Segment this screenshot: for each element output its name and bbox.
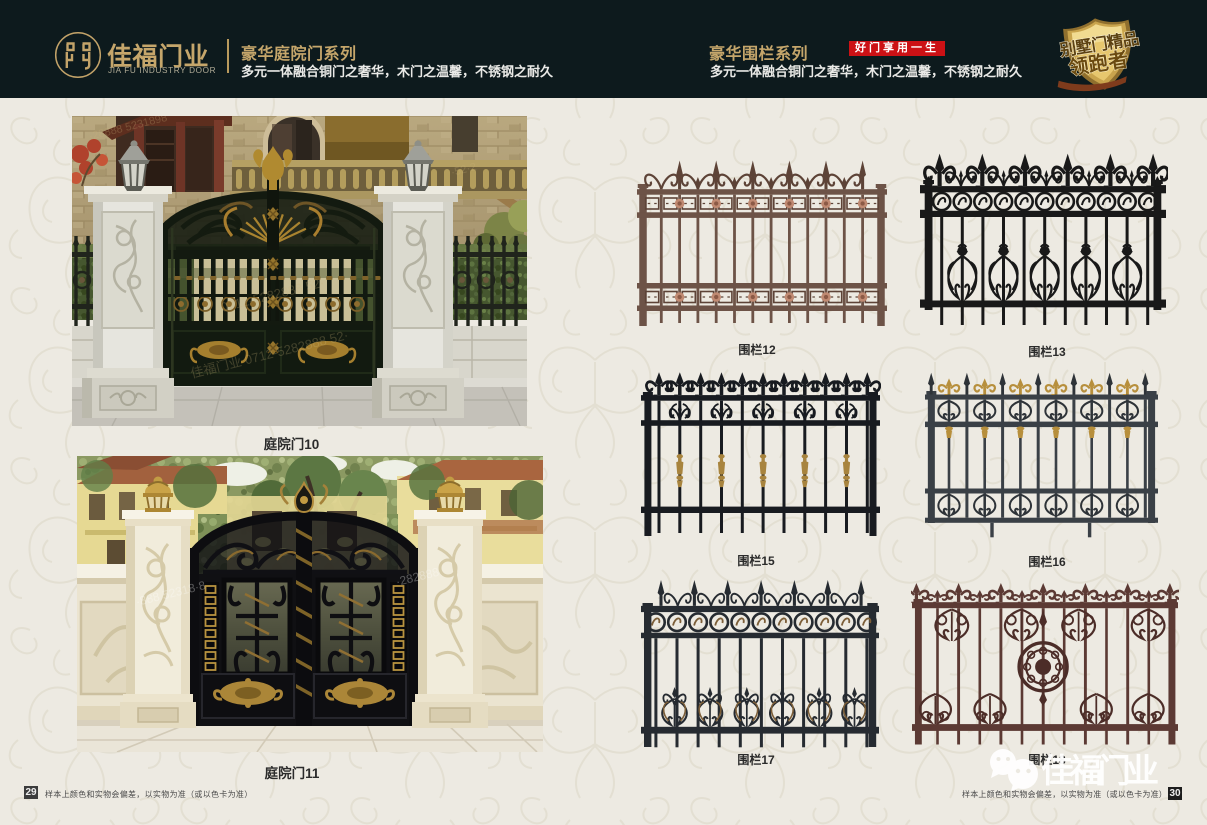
svg-text:佳福门业: 佳福门业	[1041, 752, 1159, 789]
